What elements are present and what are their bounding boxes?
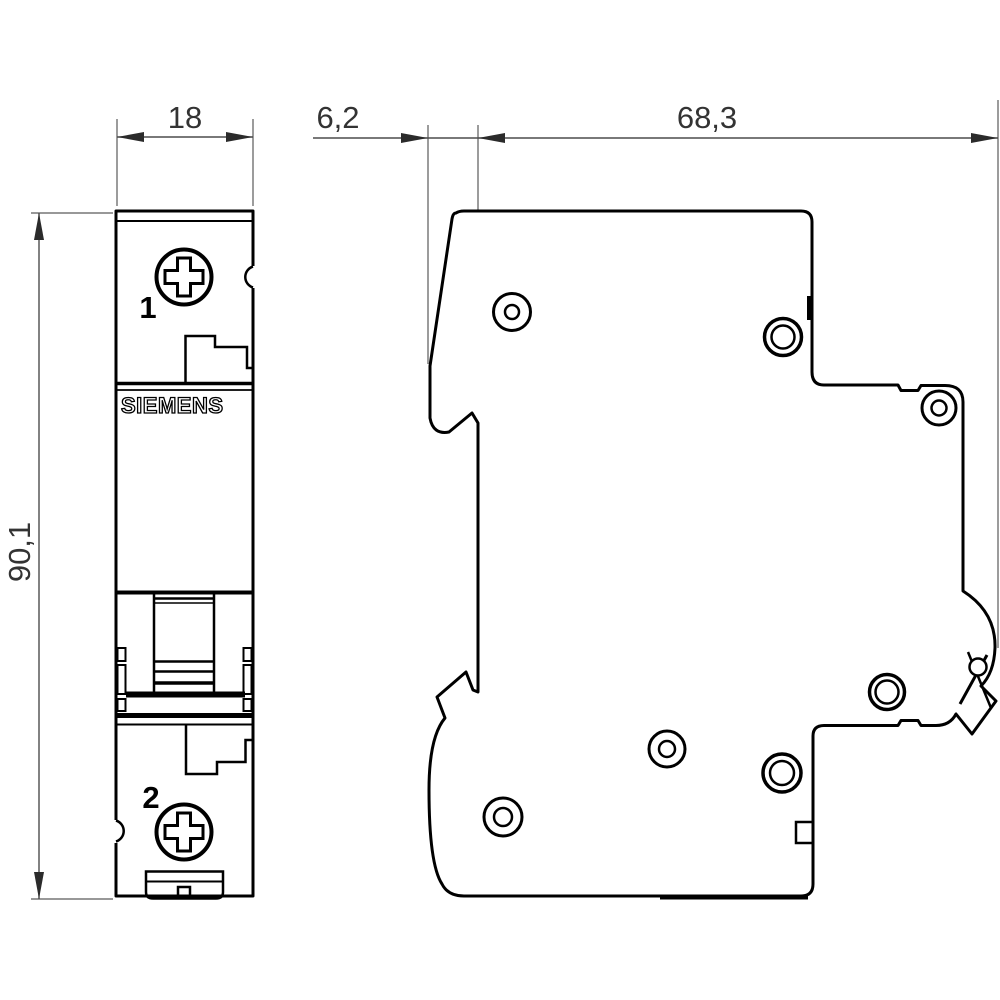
arrowhead-up <box>34 213 44 240</box>
pin-hole <box>659 741 675 757</box>
terminal-2-label: 2 <box>142 780 159 815</box>
brand-label: SIEMENS <box>121 393 224 418</box>
front-view: 1 SIEMENS <box>114 211 256 899</box>
dim-label-width: 18 <box>168 100 202 135</box>
ring-hole <box>876 681 899 704</box>
arrowhead-down <box>34 872 44 899</box>
pin-hole <box>505 305 519 319</box>
dim-label-offset: 6,2 <box>316 100 359 135</box>
dim-label-height: 90,1 <box>2 522 37 582</box>
toggle-base-bar <box>126 692 245 698</box>
arrowhead-right <box>226 132 253 142</box>
front-body-outline <box>116 211 253 896</box>
pin-hole <box>494 808 512 826</box>
screw-bottom-icon <box>157 805 212 860</box>
terminal-1-label: 1 <box>139 290 156 325</box>
pin-hole <box>932 401 947 416</box>
arrowhead-right <box>401 133 428 143</box>
ring-hole <box>772 326 795 349</box>
technical-drawing: 18 6,2 68,3 90,1 1 <box>0 0 1000 1000</box>
side-view <box>429 211 996 898</box>
arrowhead-right <box>971 133 998 143</box>
clip-pivot-pin <box>970 659 987 676</box>
arrowhead-left <box>478 133 505 143</box>
drawing-canvas: 18 6,2 68,3 90,1 1 <box>0 0 1000 1000</box>
dim-label-depth: 68,3 <box>677 100 737 135</box>
back-edge-tab <box>807 296 813 320</box>
screw-top-icon <box>157 250 212 305</box>
ring-hole <box>770 761 794 785</box>
notch-mask <box>251 266 256 288</box>
arrowhead-left <box>117 132 144 142</box>
